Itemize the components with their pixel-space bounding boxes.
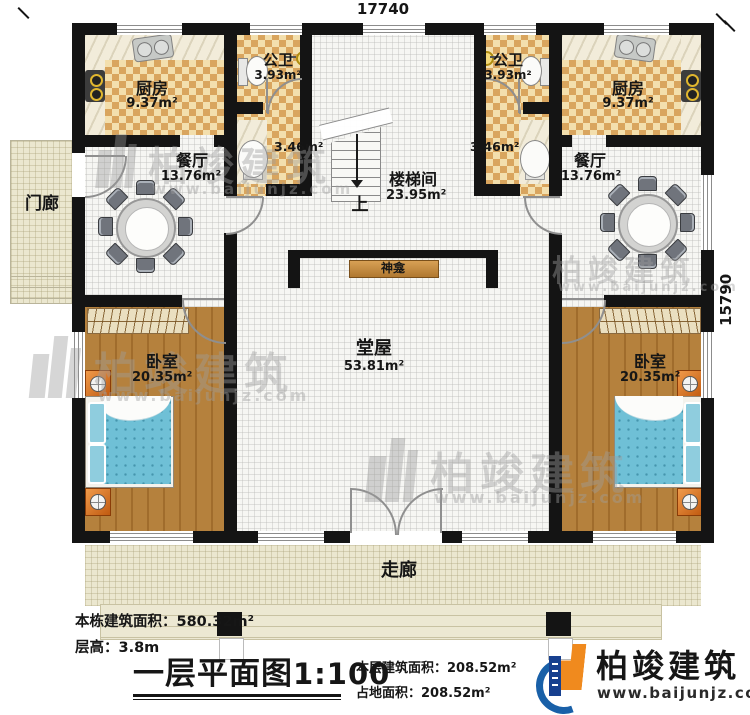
room-label-dining-left: 餐厅 (168, 153, 216, 170)
watermark-website: www.baijunjz.com (98, 386, 309, 405)
stair-direction-arrow (356, 134, 358, 180)
room-label-stairwell: 楼梯间 (384, 172, 442, 189)
floor-building-area-value: 208.52m² (447, 661, 516, 676)
title-underline-thick (133, 694, 341, 697)
room-area-bath-right: 3.93m² (482, 69, 534, 82)
ground-area-label: 占地面积： (356, 686, 421, 701)
room-area-stairwell: 23.95m² (386, 189, 442, 203)
nightstand (677, 370, 703, 398)
brand-logo-building-orange (558, 644, 587, 690)
wall (523, 102, 549, 114)
window (258, 531, 324, 543)
door-opening (72, 153, 85, 197)
wall (606, 135, 714, 147)
chair (638, 176, 657, 191)
window (462, 531, 528, 543)
room-area-wash-right: 3.46m² (470, 140, 518, 153)
watermark-website: www.baijunjz.com (434, 488, 645, 507)
window (701, 332, 714, 398)
bed-left-pillow2 (88, 444, 106, 484)
dining-table-right-top (627, 203, 671, 247)
stove-left (85, 70, 105, 102)
window (250, 23, 302, 35)
window (701, 175, 714, 250)
room-area-bedroom-right: 20.35m² (620, 371, 680, 385)
dining-table-left-top (125, 207, 169, 251)
floor-height-line: 层高：3.8m (75, 641, 159, 656)
plan-title-name: 一层平面图 (133, 656, 293, 692)
floor-plan: 柏竣建筑 www.baijunjz.com 柏竣建筑 www.baijunjz.… (0, 0, 750, 715)
bed-left-pillow1 (88, 402, 106, 444)
title-underline-thin (133, 699, 341, 700)
wall (288, 250, 300, 288)
stove-right-burner1 (686, 74, 699, 87)
watermark-logo-icon (365, 438, 426, 502)
wall (486, 250, 498, 288)
nightstand-lamp (682, 376, 698, 392)
wall (72, 23, 85, 543)
ground-area-value: 208.52m² (421, 686, 490, 701)
floor-building-area-label: 本层建筑面积： (356, 661, 447, 676)
room-area-kitchen-left: 9.37m² (124, 97, 180, 111)
sink-right-bowl2 (635, 41, 652, 58)
floor-building-area-line: 本层建筑面积：208.52m² (356, 662, 516, 676)
bed-right-pillow2 (684, 444, 702, 484)
wall (288, 250, 498, 258)
bed-right-pillow1 (684, 402, 702, 444)
floor-height-label: 层高： (75, 640, 119, 656)
label-stairs-up: 上 (346, 197, 374, 215)
chair (136, 258, 155, 273)
wardrobe-right (599, 308, 701, 334)
window (604, 23, 669, 35)
total-building-area-line: 本栋建筑面积：580.32m² (75, 615, 254, 630)
column (546, 612, 571, 636)
basin-right (520, 140, 550, 178)
chair (98, 217, 113, 236)
room-area-bath-left: 3.93m² (252, 69, 304, 82)
window (110, 531, 193, 543)
room-label-bath-left: 公卫 (258, 53, 298, 69)
watermark-logo-icon (95, 134, 141, 188)
sink-right-bowl1 (618, 39, 635, 56)
total-building-area-value: 580.32m² (177, 614, 254, 630)
room-label-bedroom-left: 卧室 (140, 354, 184, 371)
watermark-logo-icon (29, 336, 88, 398)
wall (237, 102, 263, 114)
nightstand (85, 488, 111, 516)
wardrobe-left (87, 308, 189, 334)
ground-area-line: 占地面积：208.52m² (356, 687, 490, 701)
wall (604, 295, 714, 307)
room-label-porch: 门廊 (20, 196, 64, 214)
room-area-dining-left: 13.76m² (160, 170, 222, 184)
plan-title: 一层平面图1:100 (133, 658, 390, 691)
floor-height-value: 3.8m (119, 640, 160, 656)
nightstand (677, 488, 703, 516)
sink-left-bowl1 (136, 41, 153, 58)
stove-left-burner1 (90, 74, 103, 87)
stove-left-burner2 (90, 88, 103, 101)
dining-table-right (618, 194, 678, 254)
window (117, 23, 182, 35)
sink-left-bowl2 (153, 39, 170, 56)
room-label-dining-right: 餐厅 (566, 153, 614, 170)
room-label-bedroom-right: 卧室 (628, 354, 672, 371)
window (363, 23, 425, 35)
total-building-area-label: 本栋建筑面积： (75, 614, 177, 630)
chair (680, 213, 695, 232)
dimension-tick (17, 7, 29, 19)
dimension-height: 15790 (719, 270, 735, 330)
room-area-hall: 53.81m² (340, 360, 408, 374)
window (484, 23, 536, 35)
watermark-website: www.baijunjz.com (558, 280, 739, 295)
chair (600, 213, 615, 232)
wall (72, 295, 182, 307)
wall (549, 135, 572, 147)
brand-logo-icon (536, 642, 594, 708)
porch-steps (10, 266, 72, 302)
room-label-bath-right: 公卫 (488, 53, 528, 69)
room-area-dining-right: 13.76m² (560, 170, 622, 184)
brand-logo-building-blue (549, 656, 561, 696)
dimension-width: 17740 (352, 2, 414, 18)
dining-table-left (116, 198, 176, 258)
room-area-bedroom-left: 20.35m² (132, 371, 192, 385)
nightstand-lamp (90, 494, 106, 510)
window (593, 531, 676, 543)
brand-website: www.baijunjz.com (597, 686, 750, 702)
nightstand-lamp (682, 494, 698, 510)
stove-right-burner2 (686, 88, 699, 101)
wall (474, 23, 486, 196)
brand-name: 柏竣建筑 (596, 650, 740, 684)
wall (474, 184, 520, 196)
chair (178, 217, 193, 236)
room-label-hall: 堂屋 (346, 340, 402, 359)
room-area-wash-left: 3.46m² (274, 140, 322, 153)
label-shrine: 神龛 (349, 262, 437, 275)
room-label-corridor: 走廊 (376, 562, 422, 581)
stove-right (681, 70, 701, 102)
dimension-tick (723, 20, 735, 32)
room-area-kitchen-right: 9.37m² (600, 97, 656, 111)
